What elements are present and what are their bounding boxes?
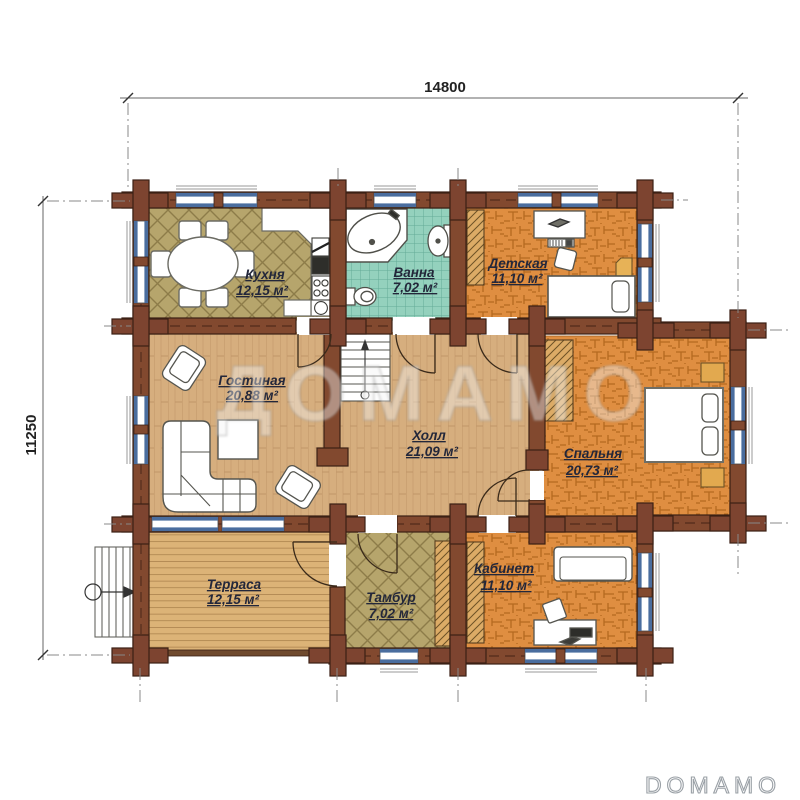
svg-text:DOMAMO: DOMAMO bbox=[645, 772, 781, 798]
svg-text:11,10 м²: 11,10 м² bbox=[480, 578, 532, 593]
svg-text:21,09 м²: 21,09 м² bbox=[405, 444, 459, 459]
svg-text:12,15 м²: 12,15 м² bbox=[236, 283, 289, 298]
svg-text:7,02 м²: 7,02 м² bbox=[369, 606, 414, 621]
svg-text:11,10 м²: 11,10 м² bbox=[491, 271, 543, 286]
svg-text:Терраса: Терраса bbox=[207, 577, 262, 592]
svg-text:Кабинет: Кабинет bbox=[474, 561, 534, 576]
svg-text:12,15 м²: 12,15 м² bbox=[207, 592, 260, 607]
svg-text:Кухня: Кухня bbox=[245, 267, 284, 282]
svg-text:14800: 14800 bbox=[424, 79, 466, 96]
svg-text:Тамбур: Тамбур bbox=[366, 590, 416, 605]
svg-text:Спальня: Спальня bbox=[564, 446, 622, 461]
svg-text:Детская: Детская bbox=[487, 256, 547, 271]
svg-text:7,02 м²: 7,02 м² bbox=[393, 280, 438, 295]
svg-text:Ванна: Ванна bbox=[393, 265, 435, 280]
svg-text:11250: 11250 bbox=[23, 415, 40, 456]
svg-text:ДОМАМО: ДОМАМО bbox=[216, 349, 657, 437]
svg-text:20,73 м²: 20,73 м² bbox=[565, 463, 619, 478]
